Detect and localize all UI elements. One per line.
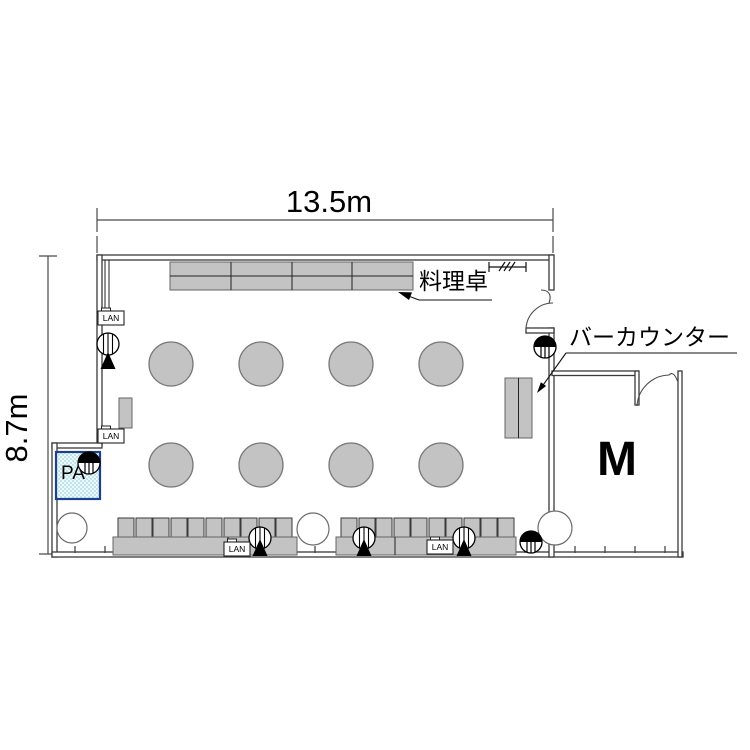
wedge-marker-icon [101, 352, 116, 369]
pillar [538, 511, 572, 545]
chair [224, 518, 240, 537]
wall-alcove-jog [52, 443, 102, 448]
lan-port: LAN [224, 539, 250, 556]
chair [153, 518, 169, 537]
entry-door [526, 290, 553, 330]
round-table [149, 342, 193, 386]
side-cabinet [119, 398, 132, 428]
leader-arrowhead [398, 292, 412, 300]
chair [188, 518, 204, 537]
wall-m-top [552, 371, 638, 376]
lan-label: LAN [432, 542, 449, 552]
lan-port: LAN [98, 308, 124, 325]
wall-right-upper [549, 255, 554, 290]
chair [394, 518, 410, 537]
round-table [419, 342, 463, 386]
wall-m-right [678, 371, 682, 557]
chair [171, 518, 187, 537]
chair [376, 518, 392, 537]
chair [411, 518, 427, 537]
entry-door-leaf [541, 290, 550, 303]
food-table-label: 料理卓 [419, 268, 488, 294]
cable-drop [105, 260, 109, 310]
round-table [149, 443, 193, 487]
chair [118, 518, 134, 537]
ceiling-speaker-icon [534, 336, 556, 358]
lan-label: LAN [229, 544, 246, 554]
hall-walls [52, 255, 683, 557]
entry-door-jamb [526, 328, 554, 333]
lan-port: LAN [98, 426, 124, 443]
monitor-door-arc [637, 374, 678, 406]
pillar [57, 513, 87, 543]
width-dimension-label: 13.5m [286, 184, 372, 219]
round-table [329, 443, 373, 487]
lan-label: LAN [103, 431, 120, 441]
chair [136, 518, 152, 537]
chair [206, 518, 222, 537]
chair [429, 518, 445, 537]
lan-label: LAN [103, 313, 120, 323]
floor-stand-icon [97, 333, 119, 355]
top-dimension: 13.5m [97, 184, 553, 253]
leader-arrowhead [537, 382, 546, 393]
ceiling-speaker-icon [78, 452, 100, 474]
round-tables [149, 342, 463, 487]
floor-plan-page: 13.5m 8.7m [0, 0, 750, 750]
chair [498, 518, 514, 537]
floor-plan: 13.5m 8.7m [0, 0, 750, 750]
height-dimension-label: 8.7m [0, 394, 34, 463]
entry-door-arc [526, 303, 553, 330]
chair [276, 518, 292, 537]
round-table [329, 342, 373, 386]
chair [481, 518, 497, 537]
lan-port: LAN [427, 537, 453, 554]
bar-counter-label: バーカウンター [569, 324, 730, 350]
left-dimension: 8.7m [0, 256, 57, 554]
wall-top [97, 255, 553, 260]
round-table [419, 443, 463, 487]
bar-counter [505, 378, 532, 438]
buffet-table [170, 262, 413, 290]
ceiling-speaker-icon [520, 531, 542, 553]
monitor-room-label: M [597, 433, 637, 486]
wall-hatch-mark [489, 262, 526, 272]
round-table [239, 443, 283, 487]
pillar [297, 513, 329, 545]
round-table [239, 342, 283, 386]
monitor-room-door [637, 374, 678, 406]
